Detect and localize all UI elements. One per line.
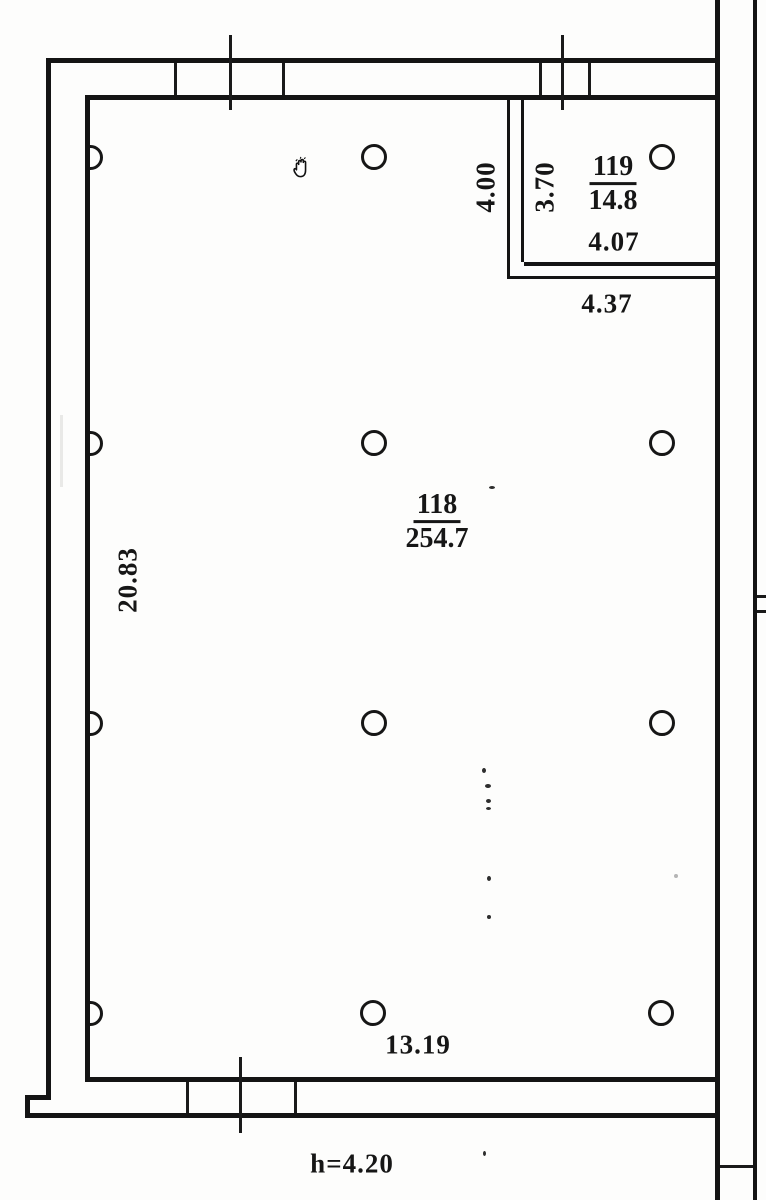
wall-joint-tick-long: [229, 35, 232, 110]
room-number: 118: [414, 490, 460, 523]
scan-noise-dot: [485, 784, 491, 788]
partition-119-left: [507, 100, 510, 279]
scan-noise-dot: [482, 768, 486, 773]
ceiling-height-label: h=4.20: [310, 1149, 394, 1180]
wall-left-outer: [46, 58, 51, 1100]
room-area: 14.8: [589, 186, 638, 216]
room-label-118: 118 254.7: [406, 490, 469, 554]
wall-top-inner: [85, 95, 718, 100]
wall-joint-tick: [588, 63, 591, 95]
dimension-label-4-07: 4.07: [588, 227, 639, 258]
column-marker: [361, 710, 387, 736]
wall-right-outer: [753, 0, 757, 1200]
wall-joint-tick-long: [239, 1057, 242, 1133]
wall-joint-tick: [757, 610, 766, 613]
dimension-label-3-70: 3.70: [530, 161, 561, 212]
wall-joint-tick-long: [561, 35, 564, 110]
wall-bottom-outer: [25, 1113, 718, 1118]
scan-noise-dot: [483, 1151, 486, 1156]
scan-noise-dot: [486, 807, 491, 810]
scan-noise-dot: [487, 876, 491, 881]
dimension-label-4-37: 4.37: [581, 289, 632, 320]
wall-right-inner: [715, 0, 720, 1200]
column-marker-half: [90, 145, 103, 170]
column-marker: [648, 1000, 674, 1026]
column-marker: [361, 430, 387, 456]
dimension-label-20-83: 20.83: [113, 547, 144, 613]
wall-joint-tick: [757, 595, 766, 598]
column-marker: [360, 1000, 386, 1026]
column-marker-half: [90, 1001, 103, 1026]
scan-noise-dot: [486, 799, 491, 803]
wall-joint-tick: [720, 1165, 753, 1168]
partition-119-bottom-inner: [524, 262, 715, 266]
room-label-119: 119 14.8: [589, 152, 638, 216]
wall-joint-tick: [539, 63, 542, 95]
partition-119-right: [521, 100, 524, 262]
hand-grab-cursor-icon[interactable]: [286, 153, 316, 185]
column-marker: [361, 144, 387, 170]
column-marker-half: [90, 711, 103, 736]
wall-joint-tick: [294, 1082, 297, 1113]
wall-left-inner: [85, 95, 90, 1082]
dimension-label-4-00: 4.00: [471, 161, 502, 212]
wall-joint-tick: [174, 63, 177, 95]
wall-foot-step-left: [25, 1095, 30, 1118]
column-marker: [649, 710, 675, 736]
scan-smudge: [60, 415, 63, 487]
wall-top-outer: [46, 58, 717, 63]
partition-119-bottom-outer: [510, 276, 715, 279]
wall-joint-tick: [186, 1082, 189, 1113]
column-marker: [649, 144, 675, 170]
column-marker: [649, 430, 675, 456]
column-marker-half: [90, 431, 103, 456]
dimension-label-13-19: 13.19: [385, 1030, 451, 1061]
wall-bottom-inner: [85, 1077, 718, 1082]
scan-noise-dot: [674, 874, 678, 878]
room-area: 254.7: [406, 524, 469, 554]
scan-noise-dot: [489, 486, 495, 489]
floor-plan-canvas[interactable]: 119 14.8 118 254.7 4.00 3.70 4.07 4.37 2…: [0, 0, 766, 1200]
room-number: 119: [590, 152, 636, 185]
scan-noise-dot: [487, 915, 491, 919]
wall-joint-tick: [282, 63, 285, 95]
